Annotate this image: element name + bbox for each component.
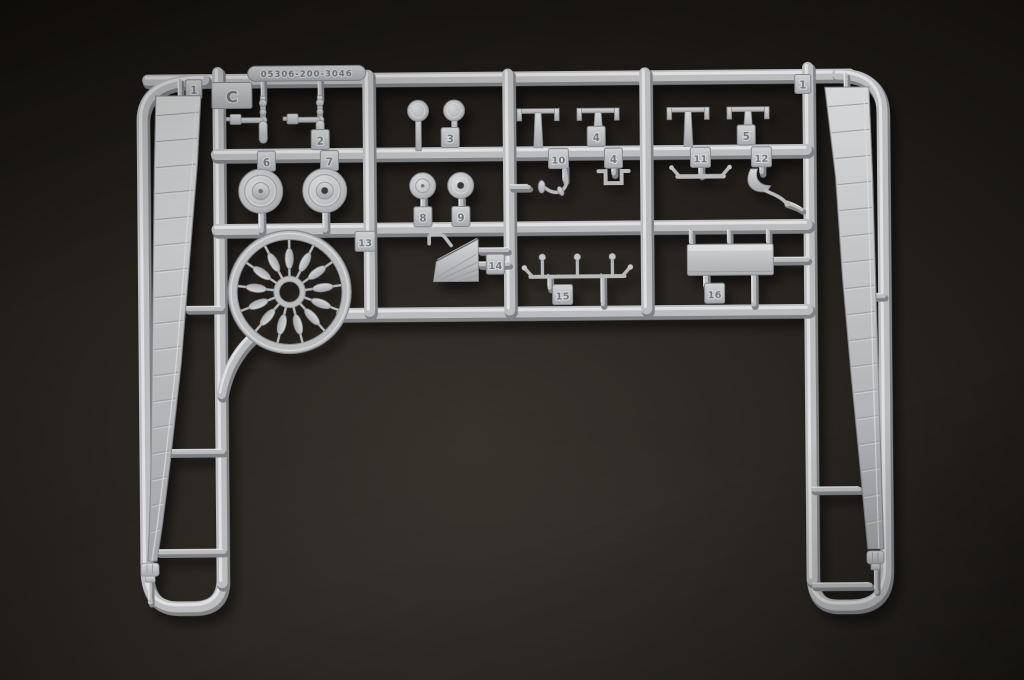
part-tab-6: 6: [257, 151, 275, 171]
tab-number: 1: [799, 79, 806, 91]
part-8-disc: [410, 173, 436, 199]
gate-letter-text: C: [226, 87, 238, 106]
runner-rail: [366, 73, 371, 314]
part-13-handle-ring: [228, 230, 352, 354]
tab-number: 14: [488, 261, 502, 272]
runner-rail: [772, 257, 809, 262]
part-tab-5: 5: [737, 125, 755, 145]
crank-lever: [283, 96, 324, 135]
grab-handle: [275, 307, 288, 343]
tab-number: 6: [263, 157, 270, 169]
part-9-disc: [448, 172, 474, 198]
tab-number: 16: [708, 290, 722, 301]
part-6-wheel: [239, 169, 283, 213]
runner-rail: [813, 583, 872, 588]
part-tab-16: 16: [705, 283, 725, 303]
tab-number: 11: [693, 154, 707, 165]
tab-number: 7: [326, 157, 333, 169]
part-tab-7: 7: [320, 151, 338, 171]
part-15-linkage-rod: [522, 253, 634, 277]
runner-rail: [812, 487, 861, 492]
grab-handle-set: [237, 239, 341, 342]
part-tab-13: 13: [355, 231, 375, 251]
tab-number: 4: [610, 154, 617, 166]
runner-rail: [506, 72, 511, 313]
part-1-blade-left: [144, 96, 205, 561]
tow-hook: [667, 107, 709, 146]
part-7-wheel: [302, 168, 346, 212]
runner-rail: [510, 185, 530, 190]
part-12-scoop: [748, 169, 791, 207]
runner-rail: [643, 71, 648, 312]
part-tab-2: 2: [311, 130, 329, 150]
gate-letter-tab: C: [212, 82, 252, 108]
tab-number: 10: [551, 156, 565, 167]
tab-number: 1: [190, 85, 197, 97]
grab-handle: [291, 307, 304, 343]
tab-number: 13: [358, 238, 372, 249]
part-tab-8: 8: [414, 207, 432, 227]
sprue-photo: 05306-200-3046 C 1 1: [0, 0, 1024, 680]
mold-code-text: 05306-200-3046: [261, 69, 353, 80]
runner-rail: [601, 274, 604, 307]
tab-number: 9: [457, 212, 464, 224]
part-tab-14: 14: [486, 254, 504, 274]
part-tab-12: 12: [751, 147, 771, 167]
tab-number: 8: [419, 213, 426, 225]
grab-handle: [241, 296, 275, 311]
grab-handle: [305, 282, 341, 293]
runner-rail: [340, 307, 809, 316]
part-tab-10: 10: [548, 149, 568, 169]
runner-rail: [186, 306, 223, 311]
tab-number: 2: [317, 136, 324, 148]
part-tab-11: 11: [690, 147, 710, 167]
runner-rail: [157, 549, 225, 554]
part-tab-4b: 4: [604, 148, 622, 168]
photo-background: 05306-200-3046 C 1 1: [0, 0, 1024, 680]
grab-handle: [285, 240, 294, 277]
runner-rail: [806, 65, 814, 582]
runner-rail: [752, 273, 755, 307]
tab-number: 5: [743, 131, 750, 143]
tab-number: 4: [593, 132, 600, 144]
part-tab-4: 4: [587, 126, 605, 146]
tab-number: 12: [754, 154, 768, 165]
runner-rail: [168, 449, 225, 454]
part-tab-3: 3: [441, 127, 459, 147]
tow-hook: [517, 109, 559, 148]
part-tab-9: 9: [452, 206, 470, 226]
grab-handle: [238, 283, 274, 294]
part-16-stowage-box: [687, 244, 773, 276]
part-1-blade-right: [825, 87, 884, 549]
runner-rail: [479, 248, 509, 253]
runner-rail: [216, 70, 223, 585]
tab-number: 3: [447, 133, 454, 145]
part-tab-15: 15: [553, 284, 573, 304]
sprue-runner-c: 05306-200-3046 C 1 1: [137, 61, 888, 614]
part-tab-1-right: 1: [795, 74, 811, 93]
tab-number: 15: [556, 291, 570, 302]
part-14-ribbed-step: [429, 234, 478, 281]
mold-code-plate: 05306-200-3046: [248, 65, 366, 81]
grab-handle: [304, 296, 338, 311]
